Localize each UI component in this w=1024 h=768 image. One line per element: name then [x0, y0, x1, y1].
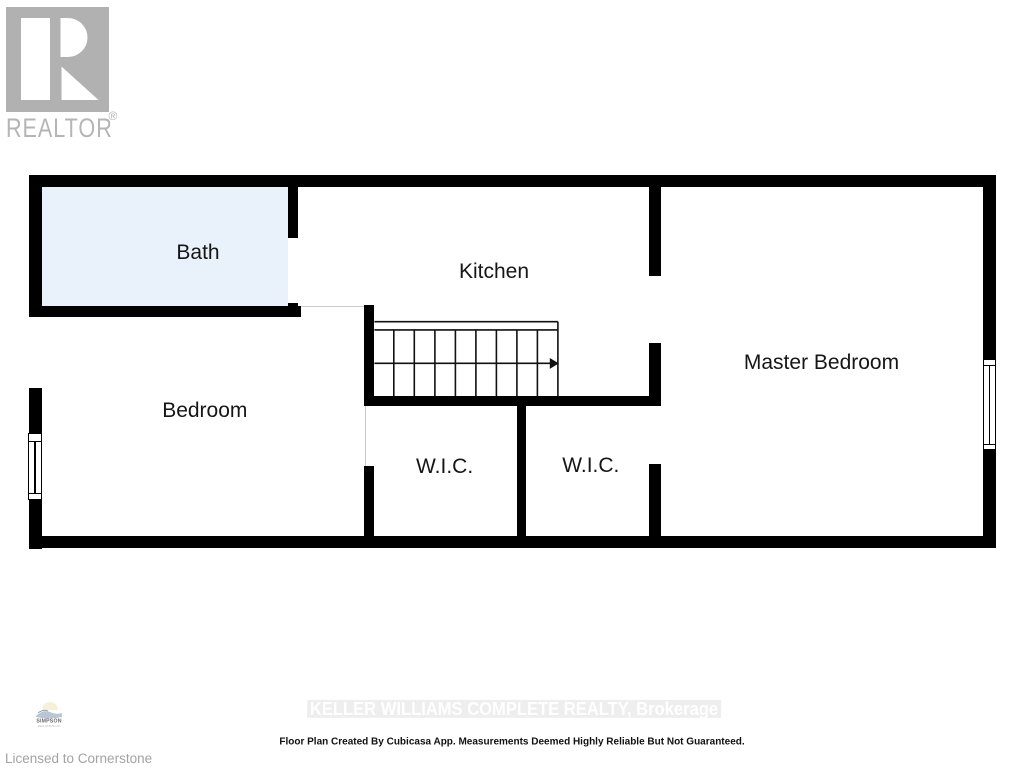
svg-text:REAL ESTATE LTD: REAL ESTATE LTD — [38, 724, 61, 728]
svg-text:SIMPSON: SIMPSON — [36, 719, 61, 725]
